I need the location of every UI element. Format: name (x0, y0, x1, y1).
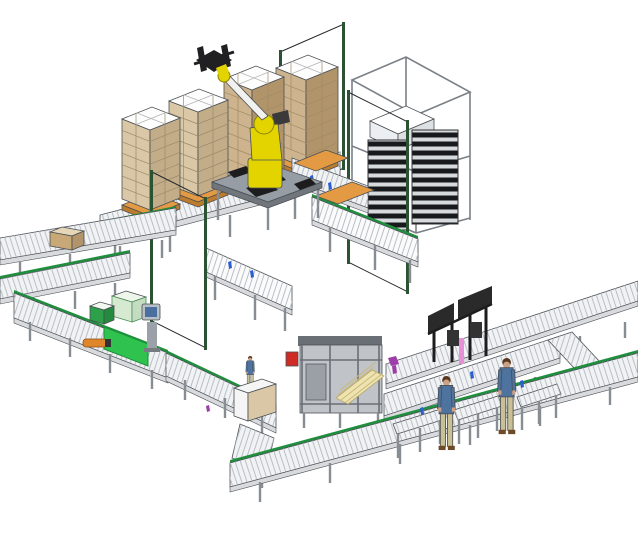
factory-line-illustration (0, 0, 638, 551)
worker-line-1 (438, 376, 456, 450)
factory-render-canvas (0, 0, 638, 551)
palletizing-cell (100, 22, 470, 350)
robot-base (248, 158, 282, 188)
hmi-pedestal (147, 322, 157, 348)
packer-operator (234, 356, 276, 421)
packing-line (0, 206, 638, 502)
worker-line-2 (498, 358, 516, 434)
hmi-screen (145, 307, 157, 317)
green-tote-large (112, 291, 146, 322)
belt-line-conveyor (14, 290, 168, 389)
hmi-base (144, 348, 160, 352)
packer-top-beam (298, 336, 382, 346)
pallet-slat-stack-left (368, 140, 408, 230)
cell-front-conveyor (206, 248, 292, 331)
gantry-pink-strip (459, 338, 464, 364)
green-tote-small (90, 302, 114, 324)
orange-hand-tool (83, 339, 111, 347)
carton-on-conveyor (50, 227, 84, 250)
packer-red-lamp (286, 352, 298, 366)
pallet-slat-stack-right (412, 130, 458, 224)
robot-gripper (194, 44, 234, 76)
case-packer (286, 336, 399, 428)
pallet-dispenser (352, 57, 470, 233)
